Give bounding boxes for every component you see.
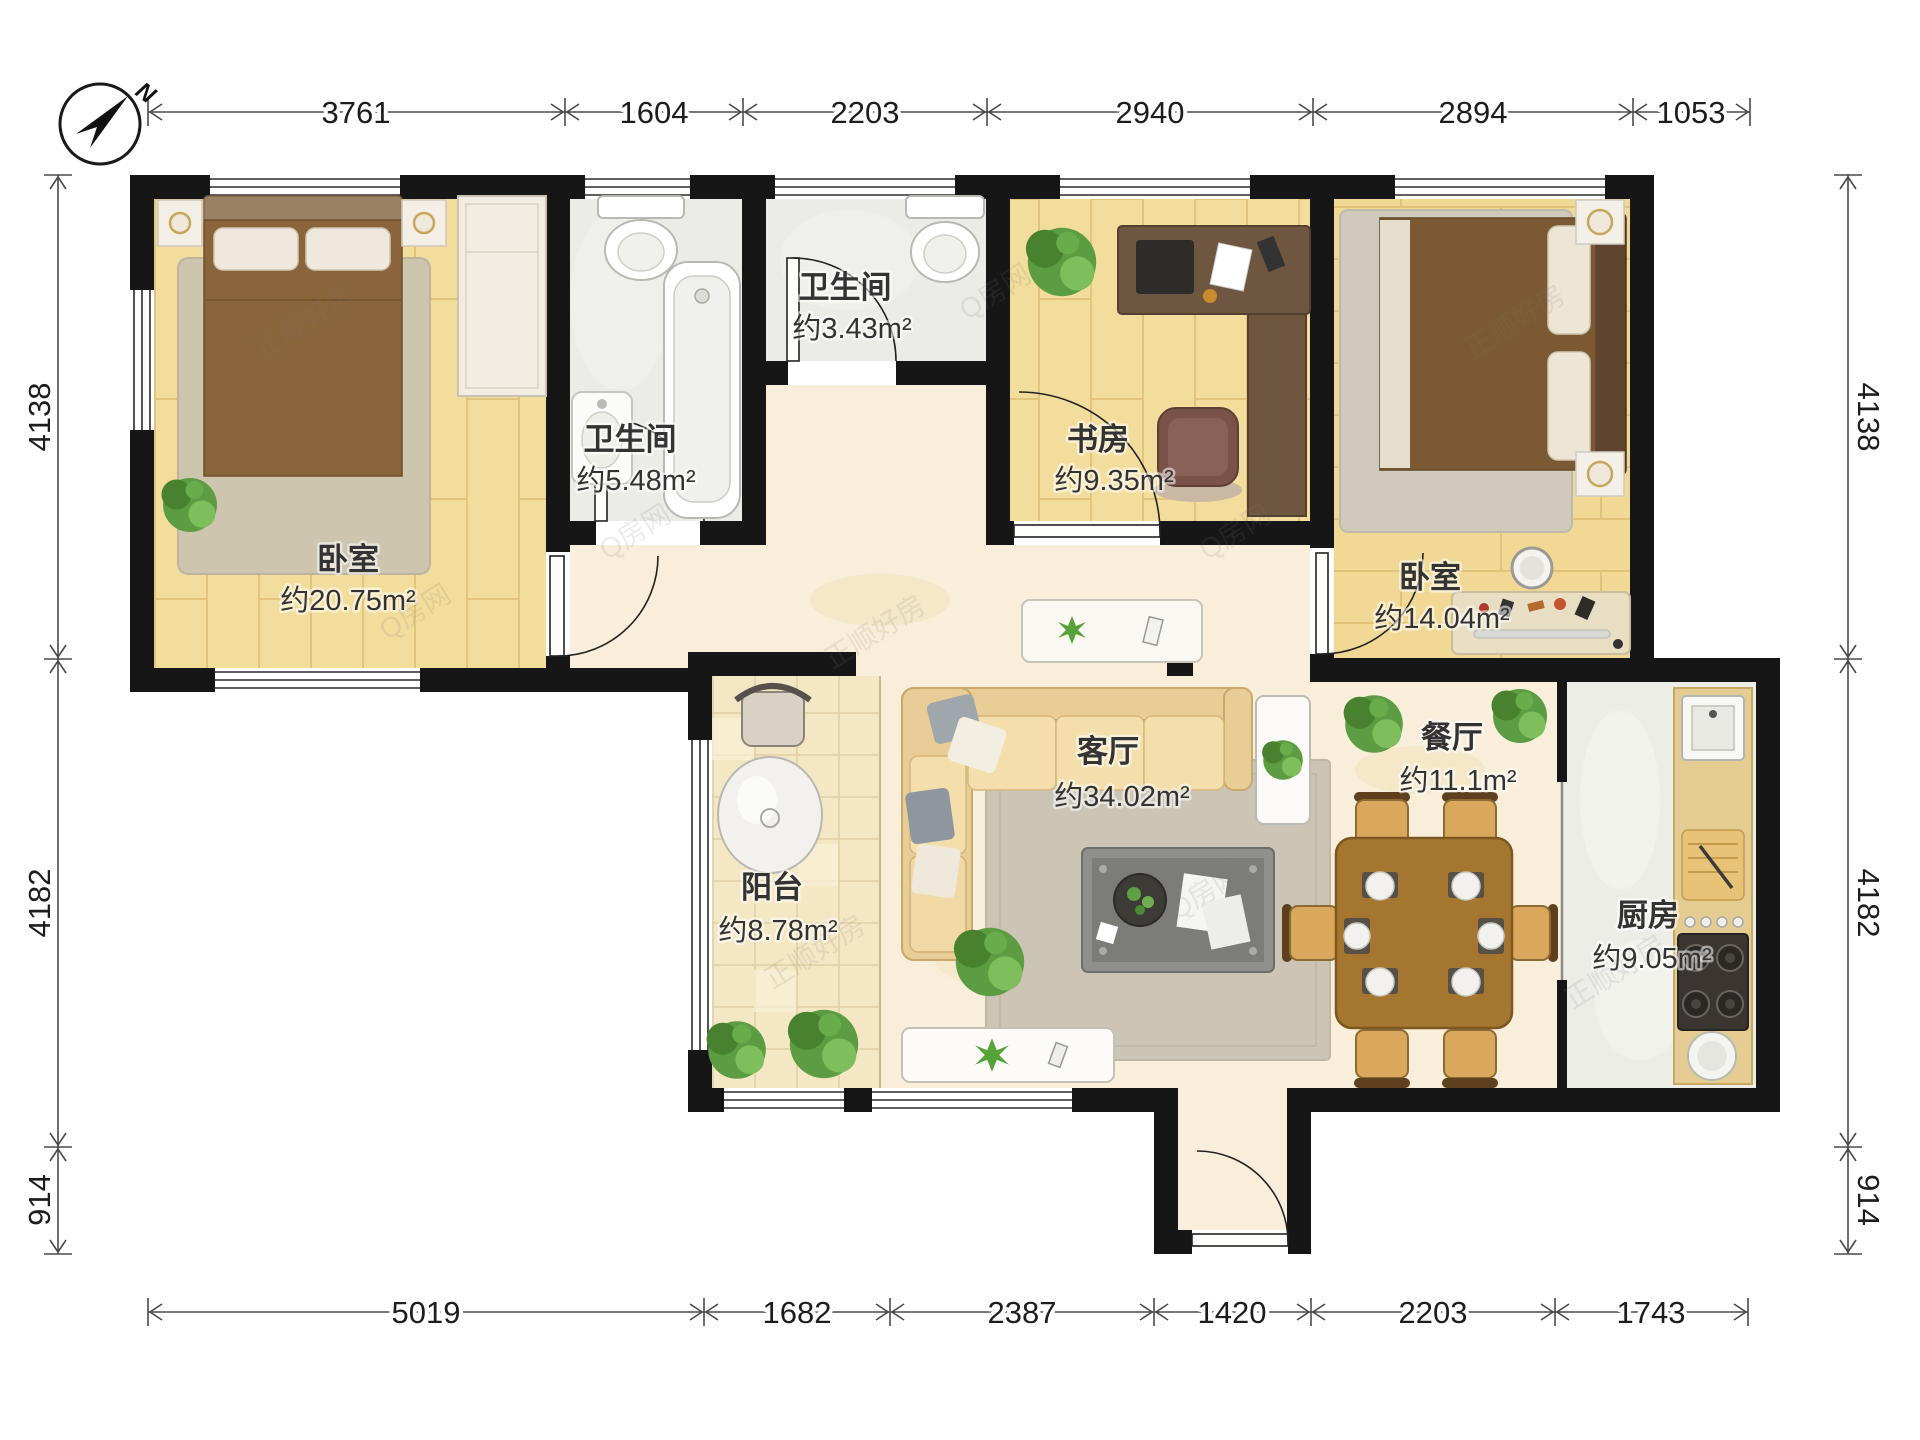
dim-bottom-4: 1420 [1198, 1295, 1267, 1330]
room-label-balcony: 阳台 [741, 870, 803, 905]
dim-right-3: 914 [1851, 1174, 1886, 1226]
nightstand-icon [1576, 452, 1624, 496]
floor-plan-page: 卧室 约20.75m² 卫生间 约5.48m² 卫生间 约3.43m² 书房 约… [0, 0, 1920, 1440]
toilet-icon [598, 196, 684, 280]
pillow-icon [911, 843, 962, 899]
window [1395, 175, 1605, 199]
room-area-dining-room: 约11.1m² [1399, 764, 1516, 797]
room-label-dining-room: 餐厅 [1421, 720, 1483, 755]
bowl-icon [1114, 874, 1166, 926]
dining-chair-icon [1282, 904, 1338, 962]
room-area-bathroom-main: 约5.48m² [576, 464, 696, 497]
dim-top-6: 1053 [1657, 95, 1726, 130]
balcony-chair-icon [736, 686, 810, 746]
window [724, 1088, 844, 1112]
window [215, 668, 420, 692]
wardrobe-icon [458, 196, 546, 396]
nightstand-icon [402, 200, 446, 246]
dim-bottom-2: 1682 [763, 1295, 832, 1330]
compass-icon: N [60, 77, 161, 164]
room-label-bedroom-right: 卧室 [1399, 560, 1461, 595]
pillow-icon [905, 787, 956, 845]
dim-top-4: 2940 [1116, 95, 1185, 130]
window [872, 1088, 1072, 1112]
toilet-icon [906, 196, 984, 282]
dim-left-2: 4182 [22, 869, 57, 938]
room-area-living-room: 约34.02m² [1054, 780, 1190, 813]
dim-bottom-6: 1743 [1617, 1295, 1686, 1330]
plant-stand-icon [1256, 696, 1310, 824]
floor-plan: 卧室 约20.75m² 卫生间 约5.48m² 卫生间 约3.43m² 书房 约… [0, 0, 1920, 1440]
tv-stand-icon [902, 1028, 1114, 1082]
dining-chair-icon [1510, 904, 1558, 962]
dimension-top: 3761 1604 2203 2940 2894 1053 [148, 95, 1750, 130]
mirror-icon [1512, 548, 1552, 588]
dim-left-1: 4138 [22, 383, 57, 452]
hallway-bench-icon [1022, 600, 1202, 662]
cutting-board-icon [1682, 830, 1744, 900]
nightstand-icon [1576, 200, 1624, 244]
laptop-icon [1136, 240, 1194, 294]
room-area-bathroom-small: 约3.43m² [792, 312, 912, 345]
nightstand-icon [158, 200, 202, 246]
dining-chair-icon [1442, 1030, 1498, 1088]
dimension-right: 4138 4182 914 [1834, 175, 1886, 1254]
dim-top-3: 2203 [831, 95, 900, 130]
room-label-living-room: 客厅 [1077, 734, 1139, 769]
bathroom-small-furniture [906, 196, 984, 282]
room-label-kitchen: 厨房 [1617, 898, 1679, 933]
dim-bottom-3: 2387 [988, 1295, 1057, 1330]
kitchen-furniture [1674, 688, 1752, 1084]
dim-right-1: 4138 [1851, 383, 1886, 452]
dim-right-2: 4182 [1851, 869, 1886, 938]
room-area-bedroom-right: 约14.04m² [1374, 602, 1510, 635]
dim-bottom-1: 5019 [392, 1295, 461, 1330]
dim-top-2: 1604 [620, 95, 689, 130]
dimension-bottom: 5019 1682 2387 1420 2203 1743 [148, 1295, 1748, 1330]
kitchen-sink-icon [1682, 696, 1744, 760]
room-label-bathroom-main: 卫生间 [584, 422, 677, 457]
dining-table-icon [1336, 838, 1512, 1028]
dim-left-3: 914 [22, 1174, 57, 1226]
room-area-study: 约9.35m² [1054, 464, 1174, 497]
dining-chair-icon [1354, 1030, 1410, 1088]
kitchen-bowl-icon [1688, 1032, 1736, 1080]
dim-bottom-5: 2203 [1399, 1295, 1468, 1330]
room-label-bathroom-small: 卫生间 [799, 270, 892, 305]
round-table-icon [718, 757, 822, 873]
room-label-bedroom-left: 卧室 [317, 542, 379, 577]
window [688, 740, 712, 1050]
window [130, 290, 154, 430]
window [1060, 175, 1250, 199]
dim-top-5: 2894 [1439, 95, 1508, 130]
dimension-left: 4138 4182 914 [22, 175, 72, 1254]
dim-top-1: 3761 [322, 95, 391, 130]
floor-hall-upper [754, 361, 998, 533]
room-label-study: 书房 [1067, 422, 1129, 457]
